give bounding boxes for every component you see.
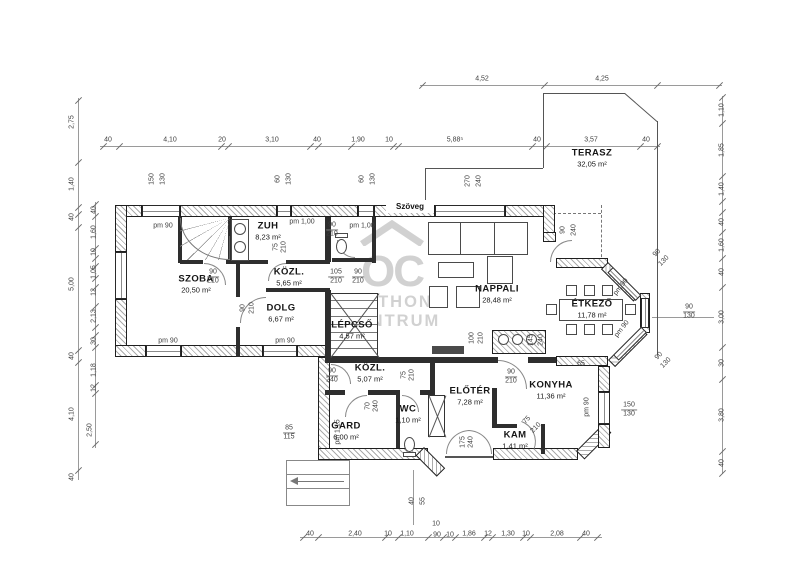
room-area: 32,05 m² xyxy=(572,160,612,169)
wall-segment xyxy=(115,345,146,357)
dim-label: pm 90 xyxy=(584,397,591,416)
room-name: ZUH xyxy=(255,221,280,232)
room-name: LÉPCSŐ xyxy=(331,320,372,331)
dim-label: 90 xyxy=(560,226,567,234)
dim-label: 210 xyxy=(409,369,416,381)
dim-label: pm 90 xyxy=(158,338,177,345)
dim-label: 240 xyxy=(468,436,475,448)
dim-label: 90240 xyxy=(326,367,338,384)
dim-label: 2,13 xyxy=(91,309,98,323)
terrace-outline xyxy=(657,121,658,355)
dim-label: 40 xyxy=(642,137,650,144)
terrace-outline xyxy=(543,93,625,94)
room-name: WC xyxy=(395,404,420,415)
toilet-icon xyxy=(404,437,415,452)
dim-label: 1,30 xyxy=(501,531,515,538)
dim-label: 90 xyxy=(652,248,662,258)
room-label: ÉTKEZŐ11,78 m² xyxy=(572,299,613,320)
direction-arrow-head xyxy=(290,477,298,485)
dim-label: 90210 xyxy=(352,268,364,285)
window xyxy=(263,345,297,357)
dim-label: 90210 xyxy=(207,268,219,285)
dining-chair xyxy=(546,304,557,315)
dim-label: 60 xyxy=(359,175,366,183)
dim-label: 65 xyxy=(577,361,585,368)
dim-label: 75 xyxy=(273,243,280,251)
dim-label: 60 xyxy=(275,175,282,183)
dim-tick xyxy=(719,470,726,477)
room-label: LÉPCSŐ4,57 m² xyxy=(331,320,372,341)
washbasin-bowl xyxy=(234,223,246,235)
dim-label: 1,86 xyxy=(462,531,476,538)
dim-label: 105210 xyxy=(328,268,344,285)
room-name: ÉTKEZŐ xyxy=(572,299,613,310)
wall-segment xyxy=(541,424,545,454)
wall-segment xyxy=(115,205,127,252)
dim-label: 1,40 xyxy=(719,182,726,196)
dim-label: 90210 xyxy=(505,368,517,385)
dim-label: 70 xyxy=(365,402,372,410)
room-label: NAPPALI28,48 m² xyxy=(475,284,519,305)
fireplace-ring xyxy=(498,334,509,345)
dim-label: 240 xyxy=(571,224,578,236)
wall-segment xyxy=(286,260,330,264)
dim-label: 270 xyxy=(465,175,472,187)
room-area: 28,48 m² xyxy=(475,296,519,305)
armchair xyxy=(487,256,513,284)
dim-label: 130 xyxy=(370,173,377,185)
sofa-cushion-line xyxy=(460,223,461,254)
window xyxy=(146,345,181,357)
wall-segment xyxy=(236,264,240,297)
sofa-cushion-line xyxy=(494,223,495,254)
wall-segment xyxy=(180,260,203,264)
sofa xyxy=(428,222,528,255)
room-area: 11,78 m² xyxy=(572,311,613,320)
spiral-stair xyxy=(180,218,230,260)
room-name: KAM xyxy=(502,430,527,441)
wall-segment xyxy=(266,288,330,292)
dim-label: 5,88⁵ xyxy=(447,137,464,144)
room-label: KÖZL.5,65 m² xyxy=(274,267,305,288)
dim-label: 4,10 xyxy=(163,137,177,144)
dim-label: 2,40 xyxy=(348,531,362,538)
dim-label: 150130 xyxy=(621,401,637,418)
dim-label: 175 xyxy=(460,436,467,448)
direction-arrow xyxy=(296,481,344,482)
room-area: 8,23 m² xyxy=(255,233,280,242)
dim-label: 1,40 xyxy=(69,177,76,191)
wall-segment xyxy=(497,424,517,428)
room-area: 7,28 m² xyxy=(450,398,491,407)
hearth-bench xyxy=(432,346,464,354)
dining-chair xyxy=(584,324,595,335)
dining-chair xyxy=(602,324,613,335)
dim-label: 10 xyxy=(432,521,440,528)
dim-label: 55 xyxy=(420,497,427,505)
window xyxy=(598,392,610,424)
dim-label: 40 xyxy=(104,137,112,144)
coffee-table xyxy=(438,262,474,278)
room-label: TERASZ32,05 m² xyxy=(572,148,612,169)
room-area: 1,10 m² xyxy=(395,416,420,425)
room-area: 6,67 m² xyxy=(266,315,295,324)
window xyxy=(115,252,127,299)
dim-label: 240 xyxy=(538,334,545,346)
dim-label: 10 xyxy=(91,248,98,256)
dim-label: 1,60 xyxy=(91,225,98,239)
dim-label: pm 90 xyxy=(153,223,172,230)
dim-label: pm 1,00 xyxy=(349,223,374,230)
dim-label: 2,50 xyxy=(87,423,94,437)
terrace-outline xyxy=(543,93,544,168)
dim-label: 1,05 xyxy=(91,265,98,279)
dim-label: 12 xyxy=(91,384,98,392)
window xyxy=(142,205,180,217)
wall-segment xyxy=(598,366,610,392)
terrace-dashed-edge xyxy=(601,205,602,262)
dim-label: 40 xyxy=(313,137,321,144)
dim-label: 75 xyxy=(401,371,408,379)
dim-label: 1,18 xyxy=(91,363,98,377)
window xyxy=(277,205,291,217)
dim-label: 150 xyxy=(149,173,156,185)
dim-label: 4,25 xyxy=(595,76,609,83)
dim-label: 40 xyxy=(582,531,590,538)
dim-label: 40 xyxy=(719,218,726,226)
toilet-icon xyxy=(336,239,347,254)
dim-label: 40 xyxy=(91,206,98,214)
dim-label: 1,10 xyxy=(719,103,726,117)
dim-label: 1,10 xyxy=(400,531,414,538)
dim-label: 40 xyxy=(409,497,416,505)
dim-label: 3,57 xyxy=(584,137,598,144)
dim-label: 1,60 xyxy=(719,238,726,252)
dim-label: 100 xyxy=(469,332,476,344)
toilet-icon xyxy=(403,452,416,457)
dim-label: 20 xyxy=(218,137,226,144)
room-name: TERASZ xyxy=(572,148,612,159)
room-label: ZUH8,23 m² xyxy=(255,221,280,242)
dim-label: 1,90 xyxy=(351,137,365,144)
wall-segment xyxy=(332,258,375,262)
dim-label: 40 xyxy=(306,531,314,538)
dim-label: 4,52 xyxy=(475,76,489,83)
room-name: ELŐTÉR xyxy=(450,386,491,397)
wall-segment xyxy=(416,447,446,477)
room-name: KONYHA xyxy=(529,380,573,391)
wall-segment xyxy=(430,357,498,363)
bay-window xyxy=(641,298,649,328)
dim-label: 145 xyxy=(528,334,535,346)
dim-label: 3,00 xyxy=(719,310,726,324)
dim-label: 130 xyxy=(657,254,670,267)
wall-segment xyxy=(543,232,556,242)
dim-label: 40 xyxy=(719,459,726,467)
shaft xyxy=(428,395,445,437)
dim-label: 4,10 xyxy=(69,407,76,421)
dim-label: 90210 xyxy=(326,221,338,238)
dim-label: pm 1,15 xyxy=(335,419,342,444)
room-area: 11,36 m² xyxy=(529,392,573,401)
room-label: KÖZL.5,07 m² xyxy=(355,363,386,384)
dim-label: 90 xyxy=(433,532,441,539)
dining-chair xyxy=(602,285,613,296)
dim-label: pm 90 xyxy=(613,319,631,339)
dim-label: 40 xyxy=(69,473,76,481)
porch-step-line xyxy=(286,474,350,475)
dim-label: 210 xyxy=(249,302,256,314)
dining-chair xyxy=(566,324,577,335)
terrace-outline xyxy=(425,168,543,169)
room-name: NAPPALI xyxy=(475,284,519,295)
dim-label: 10 xyxy=(385,137,393,144)
terrace-glazing xyxy=(435,205,505,217)
room-label: ELŐTÉR7,28 m² xyxy=(450,386,491,407)
room-name: KÖZL. xyxy=(355,363,386,374)
room-area: 5,65 m² xyxy=(274,279,305,288)
wall-segment xyxy=(181,345,263,357)
dim-label: 3,80 xyxy=(719,408,726,422)
room-name: KÖZL. xyxy=(274,267,305,278)
dim-label: 3,10 xyxy=(265,137,279,144)
dim-label: 40 xyxy=(69,352,76,360)
dim-label: 240 xyxy=(373,400,380,412)
dim-label: 2,08 xyxy=(550,531,564,538)
room-label: KAM1,41 m² xyxy=(502,430,527,451)
dim-label: 130 xyxy=(160,173,167,185)
dim-label: 210 xyxy=(478,332,485,344)
dim-label: 10 xyxy=(446,532,454,539)
dim-label: 5,00 xyxy=(69,277,76,291)
wall-segment xyxy=(492,388,497,428)
room-name: DOLG xyxy=(266,303,295,314)
dim-label: 12 xyxy=(484,531,492,538)
dim-label: 12 xyxy=(91,288,98,296)
spiral-stair-spokes xyxy=(180,218,230,260)
room-label: WC1,10 m² xyxy=(395,404,420,425)
dim-label: 210 xyxy=(281,241,288,253)
room-area: 5,07 m² xyxy=(355,375,386,384)
dim-label: 30 xyxy=(91,337,98,345)
wall-segment xyxy=(325,390,345,395)
dim-label: 40 xyxy=(719,268,726,276)
dim-label: 240 xyxy=(476,175,483,187)
dim-label: pm 1,00 xyxy=(289,219,314,226)
wall-segment xyxy=(180,205,277,217)
dim-label: 30 xyxy=(719,359,726,367)
wall-segment xyxy=(291,205,358,217)
room-label: DOLG6,67 m² xyxy=(266,303,295,324)
dim-label: 90 xyxy=(240,304,247,312)
armchair xyxy=(429,286,448,308)
room-label: KONYHA11,36 m² xyxy=(529,380,573,401)
window xyxy=(358,205,374,217)
dining-chair xyxy=(566,285,577,296)
room-area: 20,50 m² xyxy=(178,286,213,295)
washbasin-bowl xyxy=(234,241,246,253)
dim-label: 1,85 xyxy=(719,143,726,157)
dim-label: 40 xyxy=(533,137,541,144)
dim-label: pm 90 xyxy=(275,338,294,345)
dim-label: 10 xyxy=(384,531,392,538)
dim-line xyxy=(78,98,79,480)
floor-plan: OC OTTHON CENTRUM xyxy=(0,0,800,565)
door-arc xyxy=(550,240,572,262)
dim-label: 90130 xyxy=(683,303,695,320)
room-area: 1,41 m² xyxy=(502,442,527,451)
dining-chair xyxy=(625,304,636,315)
wall-segment xyxy=(528,357,556,363)
text-annotation: Szöveg xyxy=(386,200,434,213)
terrace-outline xyxy=(624,93,657,122)
room-area: 4,57 m² xyxy=(331,332,372,341)
dim-label: 2,75 xyxy=(69,115,76,129)
entry-sill xyxy=(445,456,493,458)
wall-segment xyxy=(236,327,240,357)
dim-label: 130 xyxy=(286,173,293,185)
porch-step-line xyxy=(286,488,350,489)
fireplace-ring xyxy=(512,334,523,345)
dim-label: 85115 xyxy=(283,424,295,441)
dim-line xyxy=(420,85,722,86)
dining-chair xyxy=(584,285,595,296)
dim-label: 40 xyxy=(69,213,76,221)
dim-label: 10 xyxy=(522,531,530,538)
wall-segment xyxy=(598,424,610,448)
